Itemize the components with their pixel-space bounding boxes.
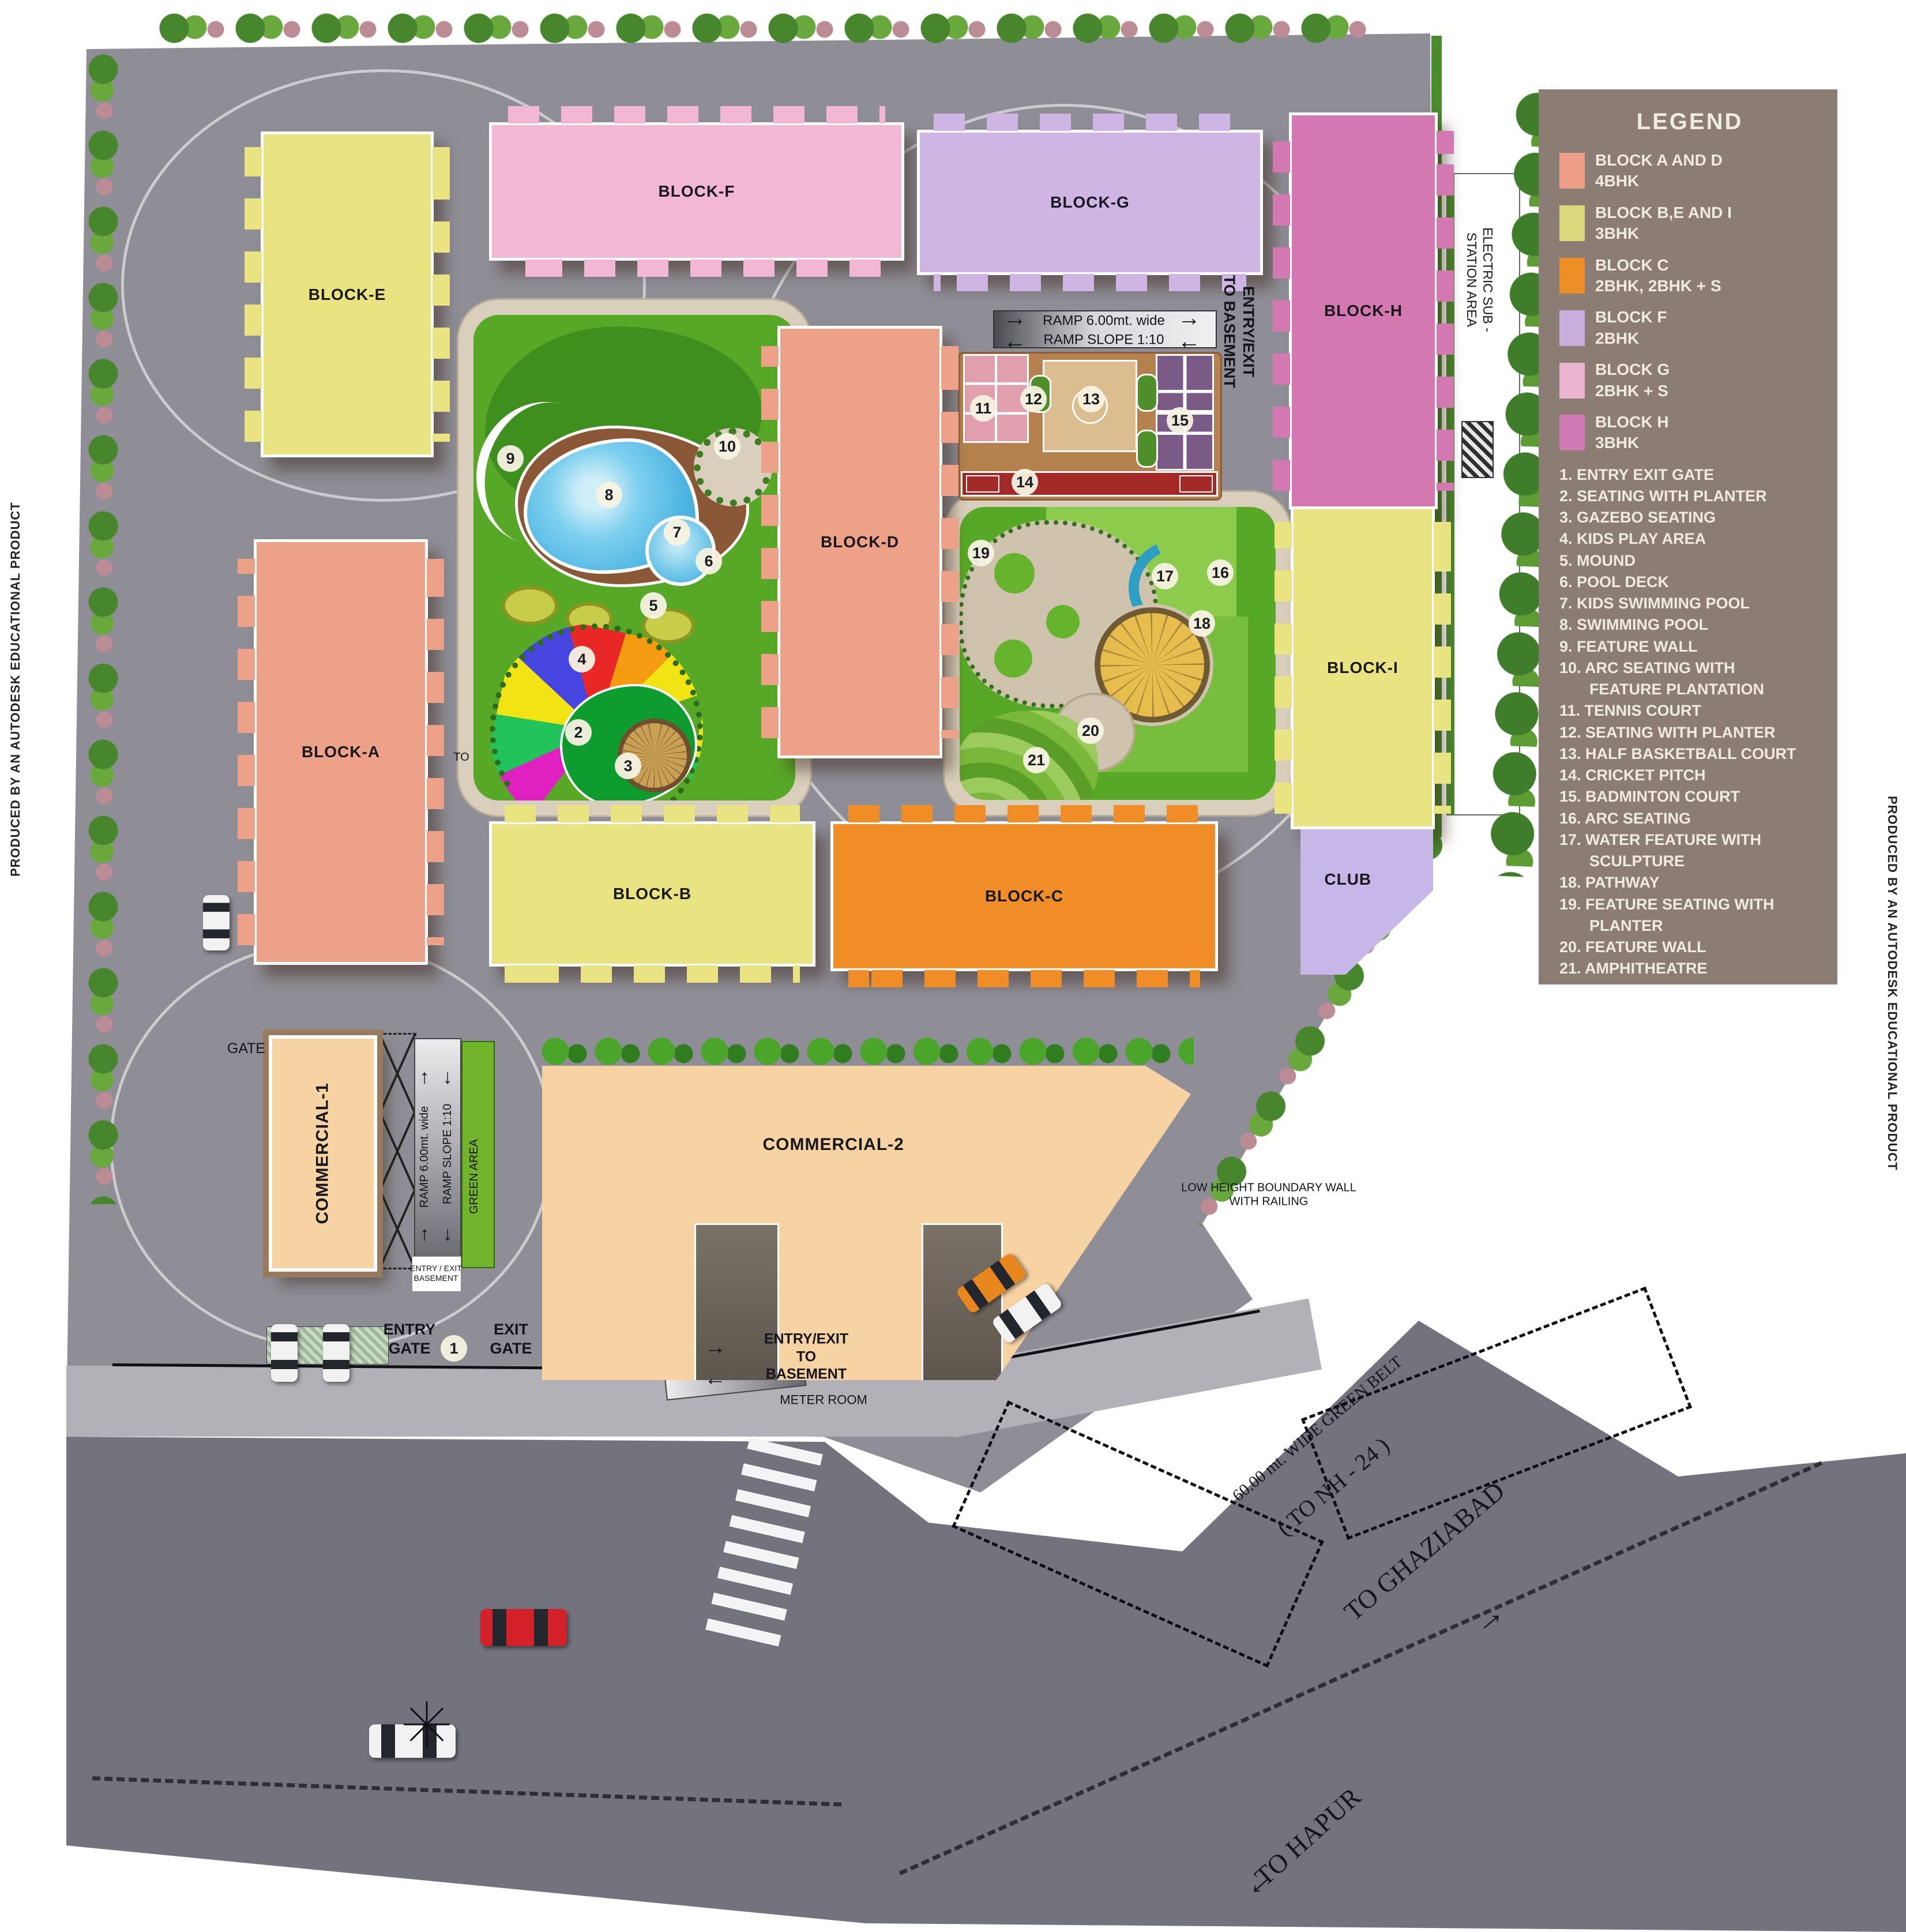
legend-item: 7. KIDS SWIMMING POOL [1559, 593, 1820, 614]
legend-item: 19. FEATURE SEATING WITH PLANTER [1559, 894, 1820, 937]
legend-item: 15. BADMINTON COURT [1559, 786, 1820, 807]
legend-swatch-text: BLOCK C 2BHK, 2BHK + S [1595, 255, 1721, 297]
legend-swatch-color [1559, 310, 1585, 346]
legend-swatch-row: BLOCK H 3BHK [1559, 412, 1820, 454]
legend-swatch-list: BLOCK A AND D 4BHKBLOCK B,E AND I 3BHKBL… [1559, 150, 1820, 454]
car-red [480, 1609, 567, 1646]
block-h-label: BLOCK-H [1324, 302, 1403, 320]
meter-room-label: METER ROOM [780, 1393, 867, 1408]
legend-swatch-text: BLOCK H 3BHK [1595, 412, 1669, 454]
marker-15: 15 [1167, 407, 1193, 434]
legend-swatch-row: BLOCK F 2BHK [1559, 307, 1820, 349]
club: CLUB [1300, 829, 1433, 975]
block-a: BLOCK-A [254, 539, 428, 965]
block-d: BLOCK-D [777, 326, 942, 758]
block-a-label: BLOCK-A [302, 743, 380, 761]
block-c: BLOCK-C [830, 821, 1218, 971]
marker-14: 14 [1012, 469, 1038, 495]
marker-6: 6 [696, 548, 722, 574]
legend-swatch-row: BLOCK B,E AND I 3BHK [1559, 202, 1820, 245]
marker-11: 11 [970, 395, 997, 422]
legend-swatch-color [1559, 363, 1585, 399]
block-e-label: BLOCK-E [309, 285, 386, 304]
ramp-arrow-left-top-icon: ← [1003, 328, 1027, 356]
ramp-c1-line1: RAMP 6.00mt. wide [418, 1106, 431, 1208]
marker-2: 2 [565, 719, 592, 746]
basement-bottom-arrow-r-icon: → [704, 1334, 726, 1360]
block-g: BLOCK-G [917, 130, 1263, 275]
planter-hole [1046, 605, 1080, 638]
car [323, 1324, 349, 1382]
legend-item: 18. PATHWAY [1559, 872, 1820, 893]
tree-row-top [156, 9, 1373, 47]
block-f-label: BLOCK-F [659, 182, 735, 201]
to-partial-label: TO [453, 750, 469, 764]
block-c-label: BLOCK-C [985, 887, 1063, 905]
block-d-label: BLOCK-D [821, 533, 899, 551]
car [271, 1324, 298, 1382]
legend-item: 4. KIDS PLAY AREA [1559, 528, 1820, 550]
boundary-wall-label: LOW HEIGHT BOUNDARY WALL WITH RAILING [1181, 1181, 1356, 1209]
legend-swatch-row: BLOCK G 2BHK + S [1559, 359, 1820, 401]
block-b-label: BLOCK-B [613, 885, 691, 903]
commercial-1: COMMERCIAL-1 [269, 1035, 377, 1272]
legend-item: 20. FEATURE WALL [1559, 937, 1820, 958]
ramp-top-line2: RAMP SLOPE 1:10 [1044, 331, 1164, 348]
car [203, 895, 230, 950]
legend-swatch-color [1559, 415, 1585, 450]
watermark-left: PRODUCED BY AN AUTODESK EDUCATIONAL PROD… [8, 502, 23, 877]
legend-swatch-text: BLOCK B,E AND I 3BHK [1595, 202, 1732, 245]
legend-item: 21. AMPHITHEATRE [1559, 958, 1820, 979]
legend-swatch-text: BLOCK F 2BHK [1595, 307, 1667, 349]
legend-title: LEGEND [1559, 109, 1820, 135]
electric-substation-label: ELECTRIC SUB - STATION AREA [1464, 227, 1496, 332]
legend-item: 1. ENTRY EXIT GATE [1559, 464, 1820, 486]
cricket-pitch [961, 471, 1218, 497]
watermark-right: PRODUCED BY AN AUTODESK EDUCATIONAL PROD… [1885, 796, 1900, 1171]
marker-7: 7 [664, 519, 690, 546]
marker-16: 16 [1207, 559, 1234, 586]
legend-item: 5. MOUND [1559, 550, 1820, 572]
marker-3: 3 [615, 753, 641, 779]
legend-item: 2. SEATING WITH PLANTER [1559, 486, 1820, 507]
c1-arrow-up2-icon: ↑ [420, 1222, 430, 1246]
legend-swatch-color [1559, 153, 1585, 189]
entry-gate-label: ENTRY GATE [384, 1320, 436, 1358]
legend-item: 17. WATER FEATURE WITH SCULPTURE [1559, 829, 1820, 873]
tree-row-left [84, 51, 122, 1204]
legend-swatch-color [1559, 258, 1585, 294]
legend-swatch-color [1559, 205, 1585, 241]
marker-5: 5 [640, 592, 667, 619]
legend-swatch-row: BLOCK A AND D 4BHK [1559, 150, 1820, 192]
entry-exit-basement-box-label: ENTRY / EXIT BASEMENT [410, 1264, 462, 1283]
block-i: BLOCK-I [1291, 506, 1435, 829]
legend-item: 9. FEATURE WALL [1559, 636, 1820, 657]
legend-swatch-row: BLOCK C 2BHK, 2BHK + S [1559, 255, 1820, 297]
commercial-1-label: COMMERCIAL-1 [313, 1082, 333, 1224]
marker-17: 17 [1152, 563, 1178, 589]
legend-swatch-text: BLOCK G 2BHK + S [1595, 359, 1670, 401]
c1-arrow-up1-icon: ↑ [420, 1065, 430, 1089]
marker-4: 4 [569, 646, 595, 672]
legend-item: 3. GAZEBO SEATING [1559, 507, 1820, 528]
basement-top-label: ENTRY/EXIT TO BASEMENT [1220, 275, 1258, 388]
ramp-c1-line2: RAMP SLOPE 1:10 [441, 1104, 454, 1204]
legend-item: 14. CRICKET PITCH [1559, 765, 1820, 786]
mound [502, 586, 558, 625]
block-h: BLOCK-H [1289, 112, 1438, 509]
marker-13: 13 [1078, 386, 1104, 412]
planter-hole [994, 553, 1035, 593]
legend-item: 6. POOL DECK [1559, 572, 1820, 593]
ramp-top-line1: RAMP 6.00mt. wide [1043, 312, 1165, 329]
seating-planter [1136, 374, 1158, 412]
green-area-label: GREEN AREA [467, 1139, 481, 1214]
block-b: BLOCK-B [489, 821, 815, 967]
legend-item: 10. ARC SEATING WITH FEATURE PLANTATION [1559, 657, 1820, 701]
marker-12: 12 [1020, 386, 1047, 412]
planter-hole [994, 640, 1032, 678]
marker-8: 8 [596, 482, 622, 508]
marker-9: 9 [497, 445, 524, 472]
c1-arrow-down1-icon: ↓ [443, 1065, 453, 1089]
substation-building-icon [1461, 421, 1494, 478]
compass-star-icon [404, 1701, 450, 1747]
block-f: BLOCK-F [489, 122, 904, 261]
marker-1: 1 [441, 1335, 467, 1362]
marker-21: 21 [1023, 747, 1050, 773]
legend-item: 13. HALF BASKETBALL COURT [1559, 743, 1820, 765]
garden-pool-area [458, 300, 810, 815]
basement-bottom-label: ENTRY/EXIT TO BASEMENT [764, 1330, 848, 1383]
legend-item: 8. SWIMMING POOL [1559, 614, 1820, 636]
basement-bottom-arrow-l-icon: ← [704, 1365, 726, 1392]
block-e: BLOCK-E [261, 131, 434, 457]
ramp-arrow-left-top2-icon: ← [1178, 328, 1201, 356]
marker-20: 20 [1077, 717, 1104, 744]
legend-panel: LEGEND BLOCK A AND D 4BHKBLOCK B,E AND I… [1539, 89, 1837, 984]
c1-arrow-down2-icon: ↓ [443, 1222, 453, 1246]
garden-feature-area [945, 492, 1291, 815]
marker-18: 18 [1189, 610, 1215, 637]
marker-19: 19 [968, 540, 994, 566]
legend-item: 11. TENNIS COURT [1559, 700, 1820, 721]
gate-left-label: GATE [227, 1040, 265, 1058]
commercial-2-label: COMMERCIAL-2 [763, 1135, 904, 1155]
legend-item-list: 1. ENTRY EXIT GATE2. SEATING WITH PLANTE… [1559, 464, 1820, 980]
legend-item: 12. SEATING WITH PLANTER [1559, 722, 1820, 743]
marker-10: 10 [714, 433, 740, 460]
legend-swatch-text: BLOCK A AND D 4BHK [1595, 150, 1723, 192]
block-g-label: BLOCK-G [1050, 193, 1130, 212]
site-plan-canvas: BLOCK-EBLOCK-FBLOCK-GBLOCK-HBLOCK-ICLUBB… [0, 0, 1906, 1932]
ramp-hatch-box [378, 1033, 416, 1269]
club-label: CLUB [1324, 870, 1371, 889]
block-i-label: BLOCK-I [1327, 659, 1399, 677]
exit-gate-label: EXIT GATE [490, 1320, 532, 1358]
seating-planter [1136, 430, 1158, 468]
palm-row-commercial [539, 1035, 1194, 1069]
legend-item: 16. ARC SEATING [1559, 808, 1820, 829]
tennis-court [963, 354, 1029, 443]
